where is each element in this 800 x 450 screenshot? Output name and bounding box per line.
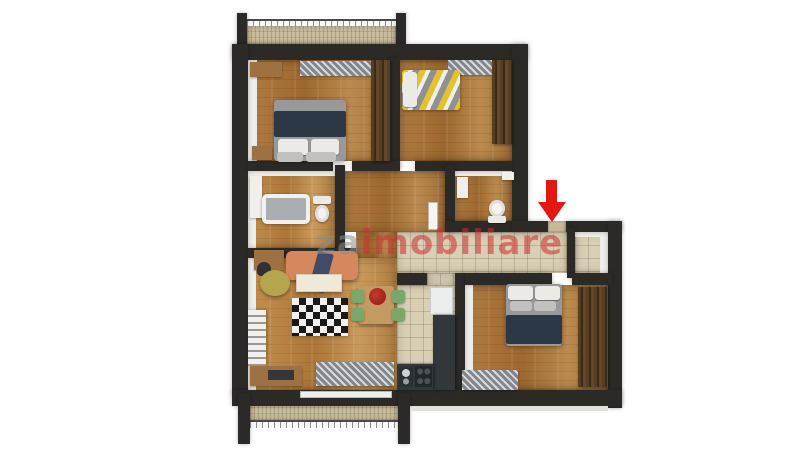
closet-wall-face-right [600, 232, 608, 273]
bedroom-3-wardrobe [578, 287, 608, 387]
bathroom-toilet-tank [313, 196, 331, 204]
closet-wall-face-top [575, 232, 608, 237]
living-coffee-table [296, 274, 342, 292]
wc-shower-head [502, 172, 514, 180]
balcony-door-glass [300, 391, 392, 398]
balcony-top-wall-left [237, 13, 247, 44]
kitchen-sink [399, 367, 413, 387]
right-wall [608, 221, 622, 408]
hallway-connector-floor [356, 232, 397, 258]
wc-door-leaf [428, 202, 438, 230]
entrance-door [548, 221, 566, 232]
entry-wall-left [512, 221, 548, 232]
bedroom-2-pillow [403, 72, 417, 107]
bedroom-1-wardrobe [371, 60, 390, 161]
slab-shadow [412, 406, 608, 411]
dining-chair-3 [392, 290, 405, 303]
closet-bottom-wall [572, 273, 612, 285]
bathroom-tub [262, 194, 310, 224]
balcony-top-wall-right [396, 13, 406, 44]
left-wall [232, 44, 248, 396]
bedroom-3-pillow-2 [535, 286, 560, 300]
bedroom-1-window-blinds [300, 61, 372, 76]
living-rug [292, 298, 348, 336]
mid-wall-right [415, 161, 512, 171]
wc-sink [457, 177, 468, 198]
wc-toilet-bowl [489, 200, 505, 217]
dining-plate [369, 288, 386, 305]
living-radiator [316, 362, 394, 386]
dining-chair-1 [351, 290, 364, 303]
bathroom-side-wall [335, 165, 345, 258]
dining-chair-2 [351, 308, 364, 321]
entrance-arrow-head [538, 202, 566, 222]
bedroom-1-pillow-3 [277, 152, 303, 162]
living-laptop [268, 370, 294, 380]
kitchen-stove [415, 366, 432, 387]
bedroom-2-wardrobe [492, 60, 512, 144]
bottom-wall [232, 390, 622, 406]
dining-chair-4 [392, 308, 405, 321]
kitchen-top-wall [397, 273, 427, 285]
balcony-top-floor [247, 26, 396, 44]
bedroom-divider-wall [390, 58, 400, 168]
mid-wall-left [248, 161, 333, 171]
kitchen-fridge [430, 287, 453, 315]
balcony-bottom-wall-right [398, 394, 410, 444]
living-bookshelf [248, 310, 266, 366]
corridor-floor [397, 232, 567, 273]
closet-side-wall [567, 228, 575, 278]
top-wall [232, 44, 528, 60]
bedroom-3-radiator [462, 370, 518, 390]
bathroom-toilet-bowl [315, 205, 329, 222]
bedroom-3-pillow-3 [510, 301, 532, 311]
kitchen-entry-floor [427, 273, 455, 285]
balcony-bottom-railing [250, 420, 398, 428]
upper-right-wall [512, 44, 528, 230]
bedroom-3-pillow-4 [534, 301, 556, 311]
kitchen-counter-right [433, 315, 455, 390]
balcony-bottom-wall-left [238, 394, 250, 444]
wc-toilet-tank [488, 216, 506, 223]
mid-wall-center [352, 161, 400, 171]
bedroom-1-pillow-4 [306, 152, 336, 162]
bedroom-1-nightstand [252, 146, 272, 160]
bedroom-3-bed-blanket [506, 315, 562, 344]
bedroom-3-pillow-1 [508, 286, 533, 300]
entrance-arrow-shaft [546, 180, 557, 202]
bedroom-1-bed-blanket [274, 111, 346, 137]
bedroom-1-shelf [250, 62, 282, 77]
bathroom-cabinet [250, 176, 262, 218]
bathroom-wall-face-top [256, 171, 335, 176]
living-pouf [260, 270, 290, 296]
floor-plan: zaimobiliare [0, 0, 800, 450]
